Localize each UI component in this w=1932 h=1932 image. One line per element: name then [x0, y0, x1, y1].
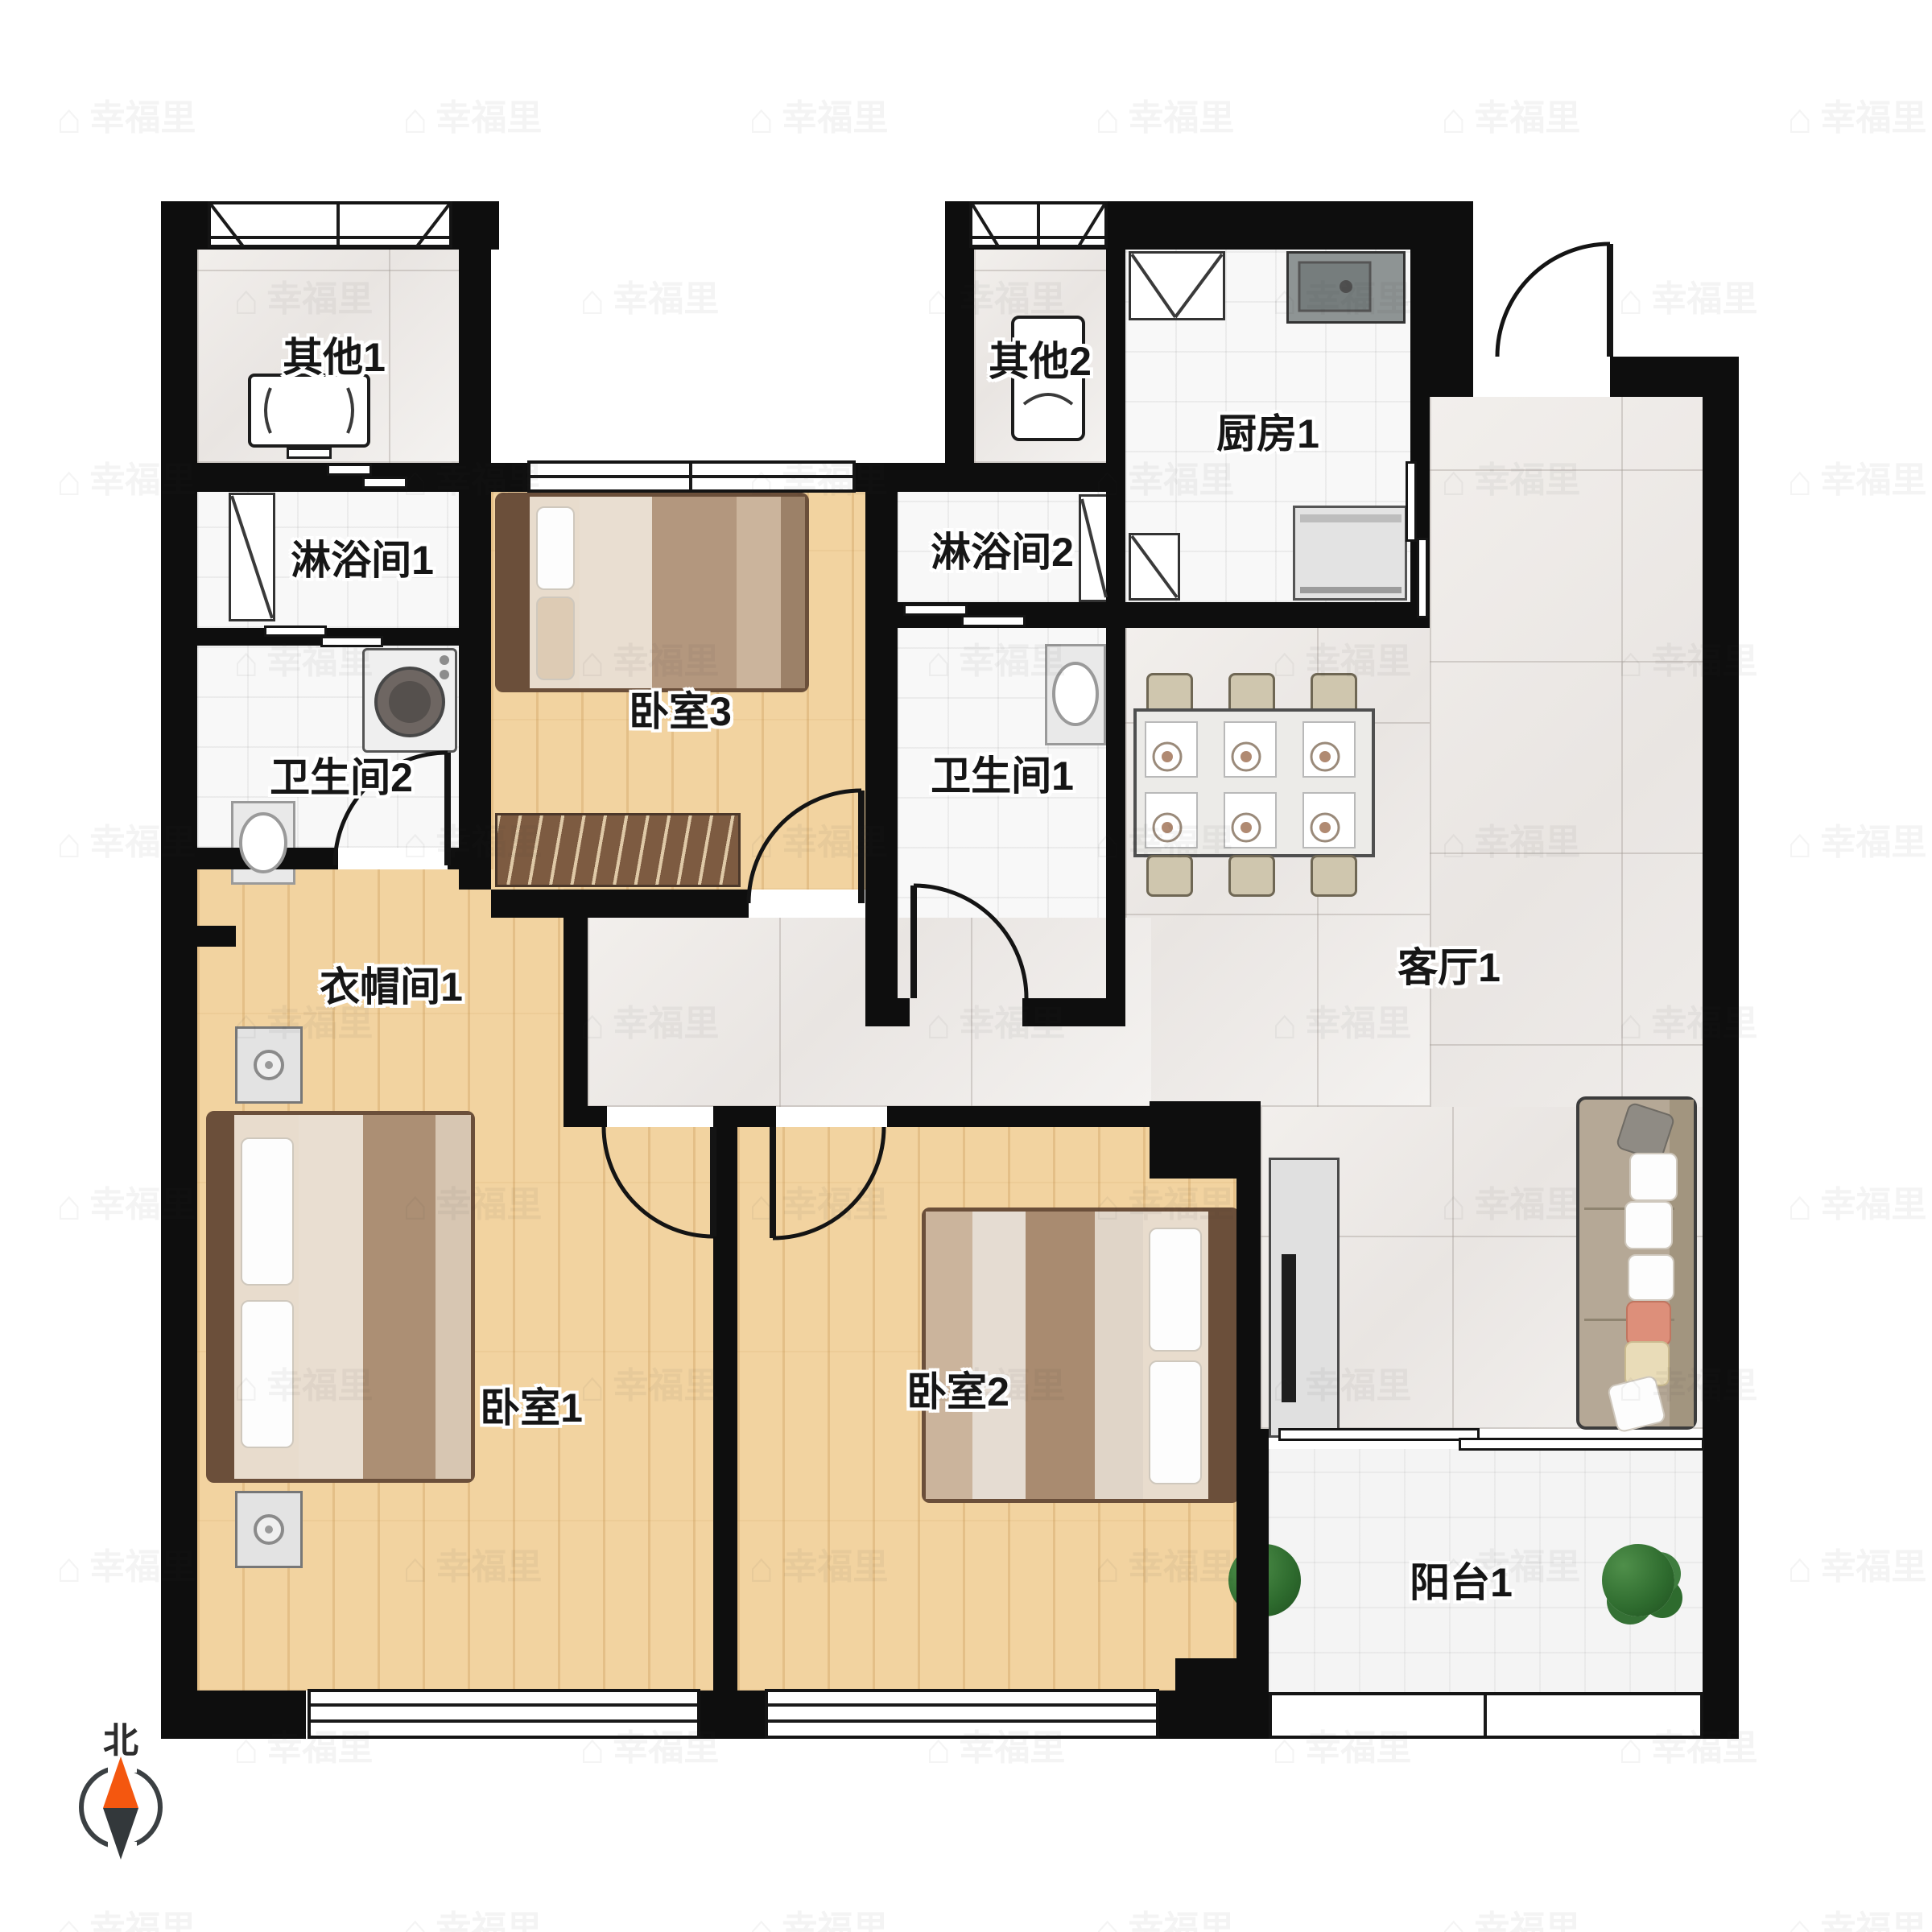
house-icon: ⌂ — [402, 96, 427, 142]
bed-icon — [922, 1207, 1240, 1503]
watermark-item: ⌂幸福里 — [1787, 451, 1926, 506]
room-label-other1: 其他1 — [283, 325, 386, 383]
house-icon: ⌂ — [1787, 1183, 1812, 1229]
wall-outer-right — [1703, 357, 1739, 1739]
bed-icon — [495, 493, 809, 692]
floor-plan: 其他1 淋浴间1 卫生间2 卧室3 其他2 淋浴间2 卫生间1 厨房1 客厅1 … — [0, 0, 1932, 1932]
wall-bath1-bottom-a — [865, 998, 910, 1026]
chair-icon — [1228, 855, 1275, 897]
house-icon: ⌂ — [56, 458, 81, 505]
sliding-door-shower2-bath1-b — [961, 615, 1026, 627]
room-label-bath2: 卫生间2 — [270, 745, 413, 803]
room-label-shower1: 淋浴间1 — [291, 528, 434, 586]
nightstand-icon — [235, 1026, 303, 1104]
sliding-door-shower2-bath1-a — [903, 604, 968, 616]
room-label-other2: 其他2 — [989, 329, 1092, 387]
nightstand-icon — [235, 1491, 303, 1568]
kitchen-cabinet — [1129, 533, 1180, 601]
window-bedroom1 — [308, 1689, 700, 1739]
wall-other1-right — [459, 201, 491, 487]
wall-pier-living — [1150, 1101, 1236, 1179]
compass-needle-north — [103, 1757, 138, 1808]
chair-icon — [1311, 855, 1357, 897]
house-icon: ⌂ — [1787, 458, 1812, 505]
room-label-kitchen1: 厨房1 — [1216, 402, 1319, 460]
room-label-balcony1: 阳台1 — [1410, 1550, 1513, 1608]
room-label-bedroom1: 卧室1 — [480, 1376, 583, 1434]
wall-bedroom3-right — [865, 463, 898, 1026]
house-icon: ⌂ — [749, 96, 774, 142]
room-label-bedroom3: 卧室3 — [629, 679, 732, 737]
watermark-item: ⌂幸福里 — [1095, 1900, 1234, 1932]
compass-needle-south — [103, 1808, 138, 1860]
house-icon: ⌂ — [1095, 96, 1120, 142]
wall-bath2-bottom-a — [161, 848, 338, 869]
house-icon: ⌂ — [1095, 1907, 1120, 1932]
watermark-item: ⌂幸福里 — [402, 89, 542, 143]
wall-cloak-hall — [563, 918, 588, 1107]
sofa-icon — [1576, 1096, 1697, 1430]
wall-bath2-bottom-b — [448, 848, 459, 869]
sliding-door-other1-shower1-b — [362, 477, 407, 489]
room-label-bedroom2: 卧室2 — [906, 1360, 1009, 1418]
wall-bottom-b — [700, 1690, 765, 1739]
sliding-door-kitchen-b — [1417, 538, 1428, 618]
wall-hall-bottom-a — [563, 1106, 607, 1127]
shower-icon — [229, 493, 275, 621]
wall-bottom-a — [161, 1690, 306, 1739]
window-bedroom3 — [527, 460, 856, 493]
bench-icon — [495, 813, 741, 887]
house-icon: ⌂ — [1787, 1907, 1812, 1932]
house-icon: ⌂ — [56, 1907, 81, 1932]
watermark-item: ⌂幸福里 — [749, 1900, 888, 1932]
tv-stand-icon — [1269, 1158, 1340, 1438]
sink-icon — [1045, 644, 1106, 745]
watermark-item: ⌂幸福里 — [1787, 1538, 1926, 1592]
room-label-living1: 客厅1 — [1397, 935, 1501, 993]
dining-table-icon — [1133, 708, 1375, 857]
wall-bedroom1-2 — [713, 1125, 737, 1707]
wall-bottom-c — [1159, 1690, 1269, 1739]
wall-cloak-stub — [197, 926, 236, 947]
house-icon: ⌂ — [580, 277, 605, 324]
watermark-item: ⌂幸福里 — [749, 89, 888, 143]
bay-window-other2 — [969, 201, 1108, 248]
sliding-door-kitchen-a — [1406, 461, 1417, 542]
room-label-bath1: 卫生间1 — [931, 744, 1074, 802]
watermark-item: ⌂幸福里 — [580, 270, 719, 324]
watermark-item: ⌂幸福里 — [402, 1900, 542, 1932]
wall-hall-bottom-b — [713, 1106, 776, 1127]
house-icon: ⌂ — [56, 1183, 81, 1229]
window-balcony-top-b — [1459, 1438, 1704, 1451]
watermark-item: ⌂幸福里 — [1095, 89, 1234, 143]
house-icon: ⌂ — [1787, 820, 1812, 867]
house-icon: ⌂ — [749, 1907, 774, 1932]
wall-other2-bottom — [865, 463, 1125, 492]
room-label-shower2: 淋浴间2 — [931, 520, 1074, 578]
house-icon: ⌂ — [56, 96, 81, 142]
house-icon: ⌂ — [56, 820, 81, 867]
room-label-cloak1: 衣帽间1 — [320, 955, 463, 1013]
wall-left-column-right — [459, 463, 491, 890]
watermark-item: ⌂幸福里 — [1787, 1900, 1926, 1932]
sliding-door-shower1-bath2-b — [320, 636, 383, 647]
wall-outer-left — [161, 201, 197, 1739]
stove-icon — [1293, 506, 1407, 601]
kitchen-corner-cabinet — [1129, 251, 1225, 320]
balcony-rail — [1269, 1692, 1703, 1739]
plant-icon — [1602, 1544, 1674, 1616]
kitchen-sink-icon — [1286, 251, 1406, 324]
chair-icon — [1146, 855, 1193, 897]
house-icon: ⌂ — [1441, 96, 1466, 142]
wall-kitchen-left — [1106, 250, 1125, 1026]
watermark-item: ⌂幸福里 — [1787, 1175, 1926, 1230]
wall-entry-pier — [1430, 201, 1473, 397]
table-icon — [248, 374, 370, 448]
house-icon: ⌂ — [402, 1907, 427, 1932]
watermark-item: ⌂幸福里 — [1441, 1900, 1580, 1932]
window-bedroom2 — [765, 1689, 1159, 1739]
wall-hall-bottom-c — [887, 1106, 1150, 1127]
sliding-door-shower1-bath2-a — [264, 625, 327, 637]
sliding-door-other1-shower1-a — [327, 464, 372, 476]
watermark-item: ⌂幸福里 — [1618, 270, 1757, 324]
sink-icon — [231, 801, 295, 885]
wall-bath1-bottom-b — [1022, 998, 1125, 1026]
bed-icon — [206, 1111, 475, 1483]
table-tab — [287, 448, 332, 459]
house-icon: ⌂ — [1618, 277, 1643, 324]
watermark-item: ⌂幸福里 — [56, 89, 196, 143]
watermark-item: ⌂幸福里 — [1787, 813, 1926, 868]
house-icon: ⌂ — [1787, 96, 1812, 142]
watermark-item: ⌂幸福里 — [56, 1900, 196, 1932]
wall-bedroom3-bottom — [491, 890, 749, 918]
house-icon: ⌂ — [1787, 1545, 1812, 1591]
house-icon: ⌂ — [56, 1545, 81, 1591]
window-balcony-top-a — [1278, 1428, 1480, 1441]
house-icon: ⌂ — [1441, 1907, 1466, 1932]
tv-icon — [1282, 1254, 1296, 1402]
washing-machine-icon — [362, 648, 457, 753]
bay-window-other1 — [208, 201, 452, 248]
compass-north-label: 北 — [103, 1711, 138, 1763]
watermark-item: ⌂幸福里 — [1441, 89, 1580, 143]
watermark-item: ⌂幸福里 — [1787, 89, 1926, 143]
